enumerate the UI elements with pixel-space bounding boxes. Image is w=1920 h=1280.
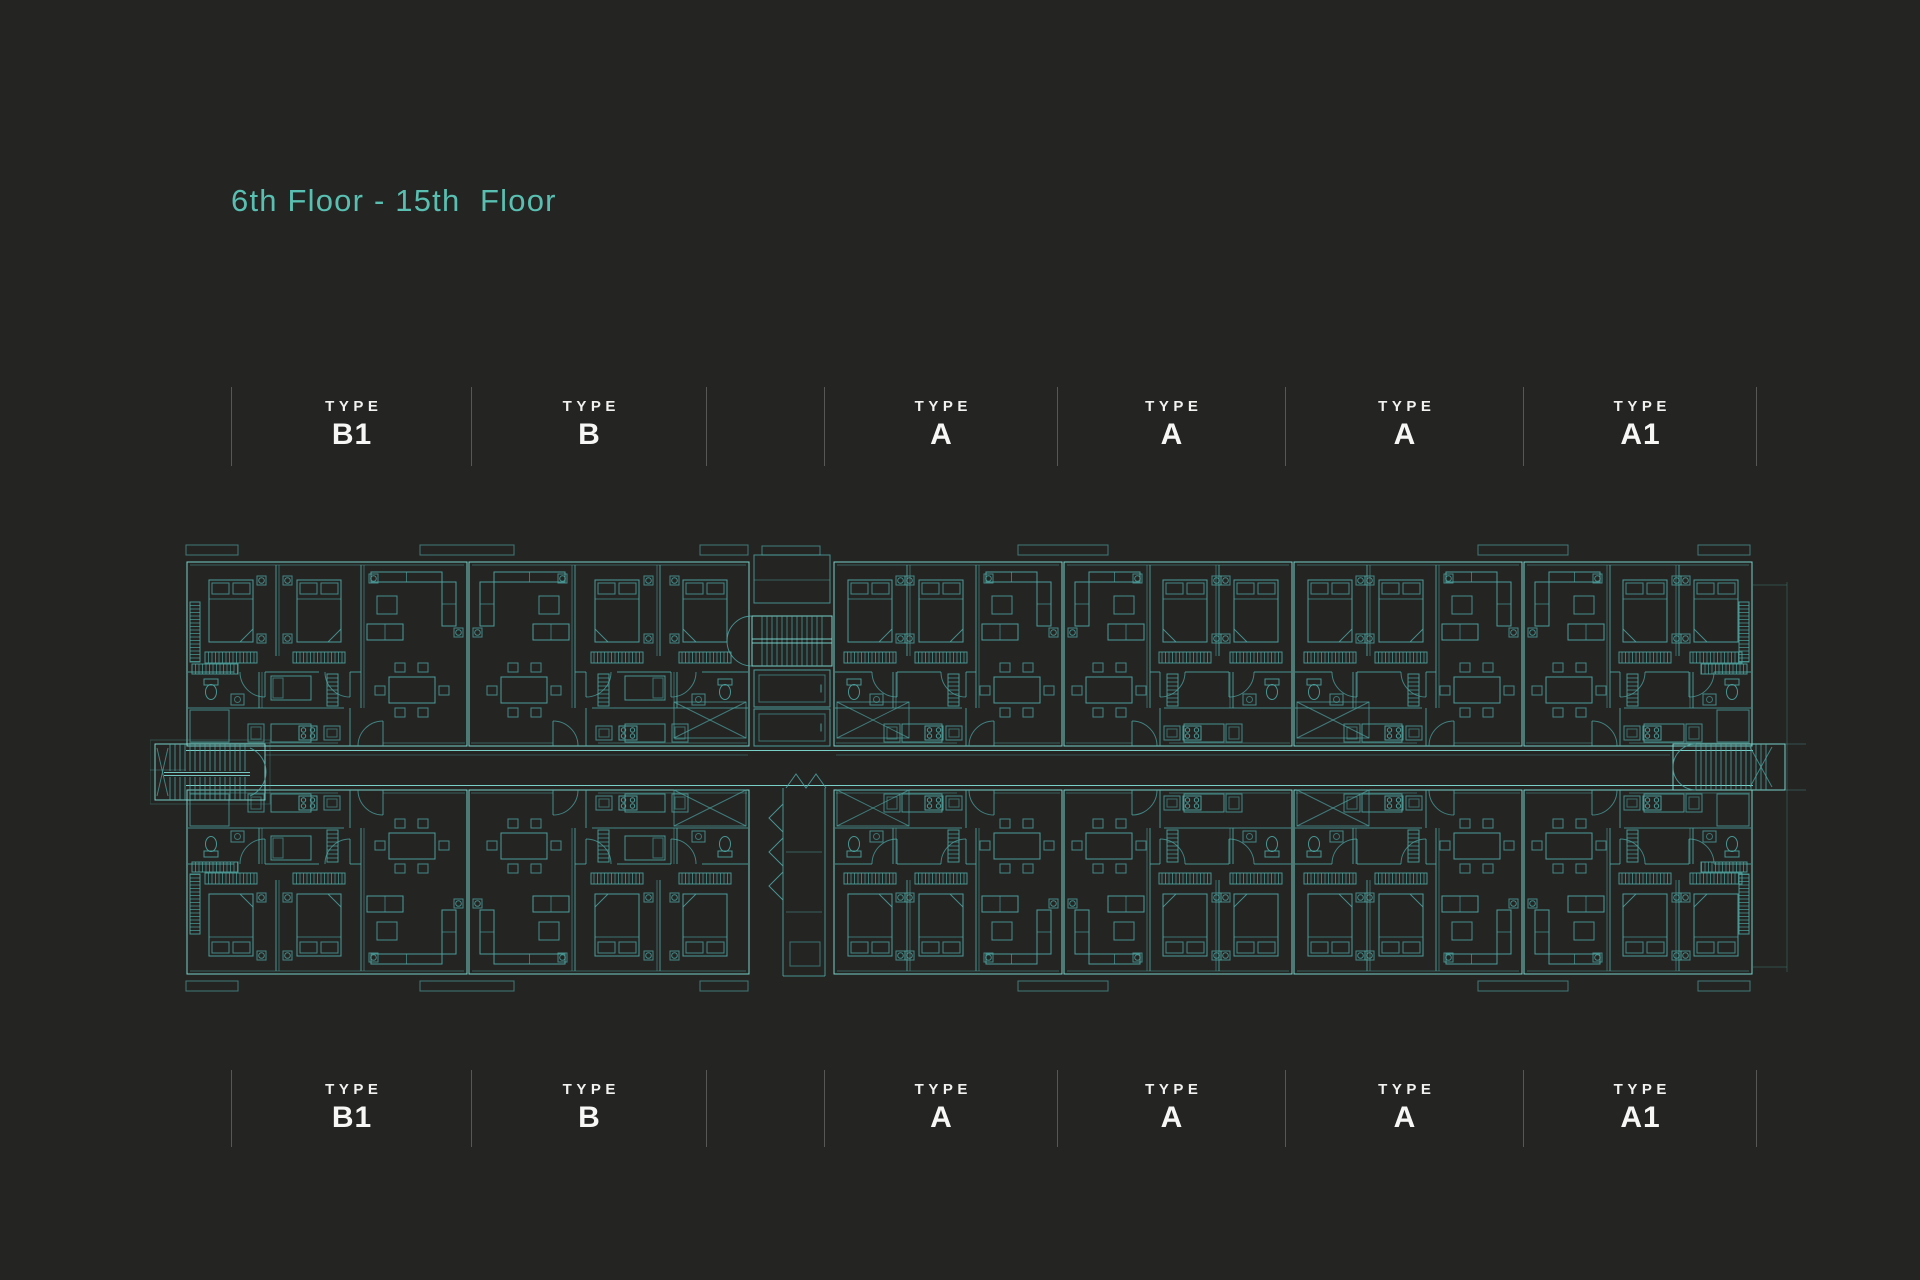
type-prefix-label: TYPE	[321, 1081, 383, 1098]
type-prefix-label: TYPE	[1374, 398, 1436, 415]
type-cell-b1: TYPEB1	[231, 1070, 471, 1147]
type-name-label: A	[1393, 1101, 1417, 1135]
type-cell-a: TYPEA	[824, 1070, 1057, 1147]
unit-type-labels-top: TYPEB1TYPEBTYPEATYPEATYPEATYPEA1	[231, 387, 1757, 466]
type-prefix-label: TYPE	[558, 398, 620, 415]
type-prefix-label: TYPE	[910, 1081, 972, 1098]
type-cell-a: TYPEA	[1057, 1070, 1285, 1147]
type-prefix-label: TYPE	[1374, 1081, 1436, 1098]
type-name-label: A	[1160, 418, 1184, 452]
type-name-label: A1	[1619, 418, 1660, 452]
type-cell-spacer	[706, 387, 824, 466]
type-name-label: B	[577, 1101, 601, 1135]
type-prefix-label: TYPE	[910, 398, 972, 415]
floor-plan-drawing	[150, 538, 1810, 1006]
type-cell-spacer	[706, 1070, 824, 1147]
unit-type-labels-bottom: TYPEB1TYPEBTYPEATYPEATYPEATYPEA1	[231, 1070, 1757, 1147]
type-name-label: A1	[1619, 1101, 1660, 1135]
type-prefix-label: TYPE	[1141, 398, 1203, 415]
type-prefix-label: TYPE	[1609, 398, 1671, 415]
type-cell-a1: TYPEA1	[1523, 1070, 1757, 1147]
type-cell-b: TYPEB	[471, 387, 706, 466]
type-cell-a: TYPEA	[1057, 387, 1285, 466]
floor-range-title: 6th Floor - 15th Floor	[231, 183, 557, 219]
type-prefix-label: TYPE	[321, 398, 383, 415]
type-cell-b: TYPEB	[471, 1070, 706, 1147]
type-cell-a1: TYPEA1	[1523, 387, 1757, 466]
type-name-label: B1	[331, 418, 372, 452]
type-name-label: A	[1393, 418, 1417, 452]
type-prefix-label: TYPE	[1141, 1081, 1203, 1098]
type-prefix-label: TYPE	[558, 1081, 620, 1098]
type-cell-a: TYPEA	[1285, 387, 1523, 466]
type-name-label: A	[929, 1101, 953, 1135]
type-name-label: B1	[331, 1101, 372, 1135]
type-cell-a: TYPEA	[824, 387, 1057, 466]
type-name-label: A	[1160, 1101, 1184, 1135]
type-prefix-label: TYPE	[1609, 1081, 1671, 1098]
type-cell-a: TYPEA	[1285, 1070, 1523, 1147]
type-name-label: B	[577, 418, 601, 452]
type-cell-b1: TYPEB1	[231, 387, 471, 466]
type-name-label: A	[929, 418, 953, 452]
floor-plan-page: { "page": { "background_color": "#242423…	[0, 0, 1920, 1280]
